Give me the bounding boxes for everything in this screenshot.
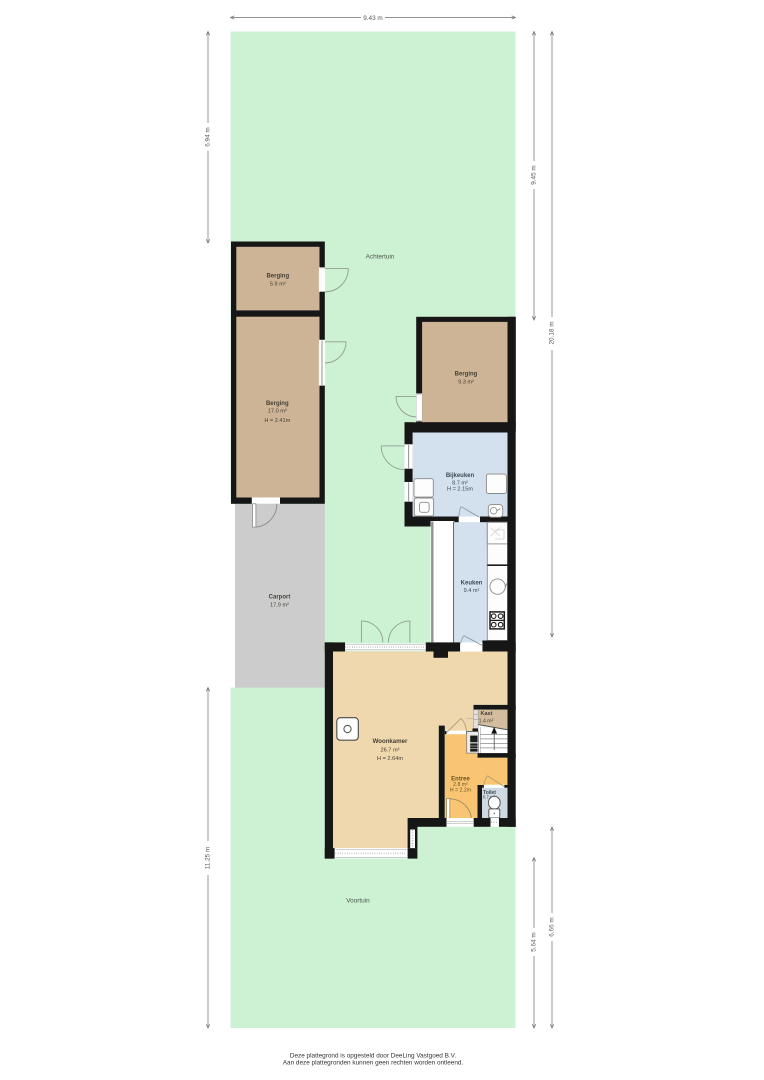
svg-text:17.9 m²: 17.9 m² [270, 603, 289, 609]
svg-text:H = 2.64m: H = 2.64m [377, 756, 403, 762]
svg-text:9.4 m²: 9.4 m² [464, 588, 480, 594]
svg-text:H = 2.15m: H = 2.15m [447, 486, 473, 492]
svg-text:6.66 m: 6.66 m [549, 917, 556, 937]
svg-text:H = 2.2m: H = 2.2m [450, 787, 471, 793]
svg-text:9.45 m: 9.45 m [531, 165, 538, 185]
svg-text:20.18 m: 20.18 m [549, 321, 556, 344]
svg-text:Berging: Berging [266, 401, 289, 407]
svg-text:Deze plattegrond is opgesteld: Deze plattegrond is opgesteld door DeeLi… [290, 1052, 456, 1059]
svg-text:Voortuin: Voortuin [346, 898, 370, 905]
svg-text:Berging: Berging [455, 372, 478, 378]
svg-text:26.7 m²: 26.7 m² [381, 748, 400, 754]
svg-text:Woonkamer: Woonkamer [373, 738, 408, 745]
svg-text:Kast: Kast [481, 711, 493, 717]
svg-text:Berging: Berging [266, 273, 289, 279]
svg-text:H = 2.41m: H = 2.41m [264, 418, 290, 424]
svg-text:5.9 m²: 5.9 m² [270, 282, 286, 288]
svg-text:1.4 m²: 1.4 m² [479, 718, 494, 724]
svg-text:9.3 m²: 9.3 m² [458, 379, 474, 385]
svg-text:Carport: Carport [269, 594, 291, 600]
svg-text:Bijkeuken: Bijkeuken [446, 473, 475, 479]
svg-text:6.94 m: 6.94 m [205, 127, 212, 147]
svg-text:Achtertuin: Achtertuin [366, 254, 395, 261]
svg-text:11.25 m: 11.25 m [205, 847, 212, 870]
svg-text:Keuken: Keuken [461, 580, 483, 586]
svg-text:9.43 m: 9.43 m [363, 15, 383, 22]
svg-text:17.0 m²: 17.0 m² [268, 409, 287, 415]
svg-text:Aan deze plattegronden kunnen: Aan deze plattegronden kunnen geen recht… [283, 1059, 464, 1066]
svg-text:5.64 m: 5.64 m [531, 932, 538, 952]
